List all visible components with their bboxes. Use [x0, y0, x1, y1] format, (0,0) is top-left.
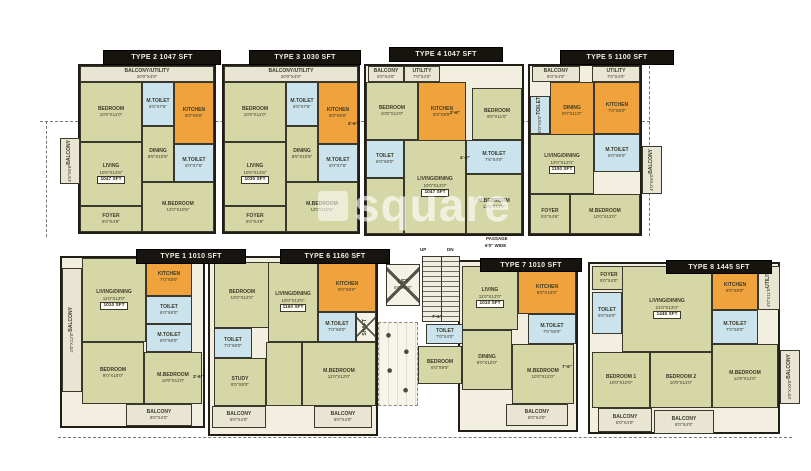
room-dimensions: 7'0"X8'0" — [608, 108, 626, 113]
room-living: LIVING11'0"X12'0"1010 SFT — [462, 266, 518, 330]
room-dimensions: 8'0"X4'0" — [150, 415, 168, 420]
room-balcony: BALCONY4'0"X10'0" — [780, 350, 800, 404]
room-balcony: BALCONY8'0"X4'0" — [532, 66, 580, 82]
type-3-badge: TYPE 3 1030 SFT — [249, 50, 361, 65]
room-dimensions: 10'0"X11'0" — [381, 111, 404, 116]
room-dining: DINING8'6"X10'6" — [286, 126, 318, 182]
room-utility: UTILITY7'0"X4'0" — [404, 66, 440, 82]
dim-label: 4'-0" — [460, 155, 470, 160]
room-dimensions: 7'0"X8'0" — [726, 327, 744, 332]
area-stamp: 1010 SFT — [476, 300, 503, 308]
room-kitchen: KITCHEN8'0"X10'0" — [518, 266, 576, 314]
room-bedroom: BEDROOM10'0"X12'0" — [214, 262, 270, 328]
room-dining: DINING8'0"X11'0" — [550, 82, 594, 140]
room-dimensions: 10'0"X12'0" — [532, 374, 555, 379]
room-dimensions: 6'0"X8'0" — [160, 310, 178, 315]
room-dimensions: 21'0"X13'0" — [656, 305, 679, 310]
room-m-bedroom: M.BEDROOM10'0"X12'0" — [570, 194, 640, 234]
area-stamp: 1445 SFT — [653, 311, 680, 319]
room-dimensions: 6'0"X8'0" — [608, 153, 626, 158]
room-dimensions: 8'0"X4'0" — [334, 417, 352, 422]
room-dimensions: 10'0"X12'0" — [551, 160, 574, 165]
room-m-bedroom: M.BEDROOM12'0"X11'0" — [466, 174, 522, 234]
room-label: SHAFT — [363, 319, 369, 336]
room-dimensions: 4'0"X6'0" — [649, 173, 654, 191]
room-dimensions: 7'0"X8'0" — [160, 277, 178, 282]
room-foyer: FOYER5'0"X4'6" — [80, 206, 142, 232]
dn-label: DN — [447, 247, 454, 252]
room-dimensions: 5'0"X4'0" — [600, 278, 618, 283]
up-label: UP — [420, 247, 426, 252]
room-dimensions: 10'0"X13'0" — [424, 183, 447, 188]
room-foyer: FOYER5'0"X4'6" — [530, 194, 570, 234]
room-dimensions: 8'0"X12'0" — [477, 360, 497, 365]
room-bedroom: BEDROOM10'0"X11'0" — [80, 82, 142, 142]
room-kitchen: KITCHEN8'0"X8'6" — [174, 82, 214, 144]
room-m-bedroom: M.BEDROOM12'0"X11'0" — [712, 344, 778, 408]
room-dimensions: 6'0"X8'0" — [376, 159, 394, 164]
room-dimensions: 7'0"X8'0" — [543, 329, 561, 334]
room-m-bedroom: M.BEDROOM11'0"X12'0" — [302, 342, 376, 406]
room-living: LIVING10'6"X13'6"1047 SFT — [80, 142, 142, 206]
passage-label: PASSAGE — [486, 236, 508, 241]
room-m-toilet: M.TOILET6'0"X8'0" — [594, 134, 640, 172]
dim-label: 2'-6" — [450, 110, 460, 115]
room-toilet: TOILET6'0"X8'0" — [592, 292, 622, 334]
room-dining: DINING8'0"X12'0" — [462, 330, 512, 390]
room-dimensions: 8'0"X10'0" — [537, 290, 557, 295]
room-dimensions: 12'0"X11'0" — [734, 376, 757, 381]
room-dimensions: 5'0"X4'0" — [377, 74, 395, 79]
room-dimensions: 7'0"X4'0" — [436, 334, 454, 339]
boundary-line — [46, 121, 47, 237]
room-bedroom-1: BEDROOM 110'0"X10'0" — [592, 352, 650, 408]
room-living-dining: LIVING/DINING21'0"X13'0"1445 SFT — [622, 266, 712, 352]
room-label: BALCONY — [69, 307, 75, 332]
room-dimensions: 8'0"X8'6" — [329, 113, 347, 118]
room-dimensions: 12'0"X10'6" — [311, 207, 334, 212]
room-kitchen: KITCHEN8'0"X8'0" — [318, 262, 376, 312]
room-dimensions: 5'0"X4'6" — [541, 214, 559, 219]
room-dimensions: 12'0"X10'6" — [167, 207, 190, 212]
room-dimensions: 7'0"X4'0" — [607, 74, 625, 79]
room-m-toilet: M.TOILET7'0"X8'0" — [318, 312, 356, 342]
room-dimensions: 12'0"X11'0" — [483, 204, 506, 209]
room-toilet: TOILET7'0"X4'0" — [426, 324, 464, 344]
type-4-badge: TYPE 4 1047 SFT — [389, 47, 503, 62]
area-stamp: 1010 SFT — [100, 302, 127, 310]
room-foyer: FOYER5'0"X4'6" — [224, 206, 286, 232]
area-stamp: 1100 SFT — [549, 166, 576, 174]
room-dimensions: 7'0"X8'0" — [224, 343, 242, 348]
dim-label: 7'-6" — [562, 364, 572, 369]
floor-plan-canvas: square BALCONY/UTILITY20'0"X4'0"BEDROOM1… — [0, 0, 811, 471]
room-dimensions: 5'0"X4'6" — [102, 219, 120, 224]
room-dimensions: 6'0"X6'0" — [537, 115, 542, 133]
room-balcony: BALCONY8'0"X4'0" — [126, 404, 192, 426]
room-label: BALCONY — [787, 354, 793, 379]
room-foyer: FOYER5'0"X4'0" — [592, 266, 626, 290]
room-utility: UTILITY7'0"X4'0" — [592, 66, 640, 82]
room-dimensions: 9'0"X10'0" — [103, 373, 123, 378]
room-m-bedroom: M.BEDROOM12'0"X10'6" — [142, 182, 214, 232]
room-dimensions: 8'0"X8'0" — [726, 288, 744, 293]
room-room — [378, 322, 418, 406]
room-dimensions: 10'0"X11'0" — [100, 112, 123, 117]
room-dimensions: 10'6"X13'6" — [100, 170, 123, 175]
area-stamp: 1047 SFT — [97, 176, 124, 184]
room-dimensions: 6'0"X7'6" — [329, 163, 347, 168]
room-bedroom: BEDROOM9'0"X11'0" — [472, 88, 522, 140]
room-balcony: BALCONY8'0"X4'0" — [598, 408, 652, 432]
room-m-toilet: M.TOILET6'0"X7'6" — [142, 82, 174, 126]
room-dimensions: 10'0"X11'0" — [670, 380, 693, 385]
room-dimensions: 8'0"X8'0" — [231, 382, 249, 387]
room-dimensions: 9'0"X11'0" — [487, 114, 507, 119]
room-dimensions: 5'0"X4'6" — [246, 219, 264, 224]
room-balcony: BALCONY8'0"X4'0" — [506, 404, 568, 426]
room-shaft: SHAFT — [356, 312, 376, 342]
room-m-bedroom: M.BEDROOM10'0"X12'0" — [512, 344, 574, 404]
room-dimensions: 11'0"X12'0" — [328, 374, 351, 379]
room-dimensions: 6'0"X7'6" — [293, 104, 311, 109]
room-dimensions: 10'6"X13'6" — [244, 170, 267, 175]
room-m-toilet: M.TOILET6'0"X7'6" — [286, 82, 318, 126]
room-m-toilet: M.TOILET7'0"X8'0" — [528, 314, 576, 344]
room-dimensions: 5'0"X5'0" — [394, 285, 412, 290]
type-5-badge: TYPE 5 1100 SFT — [560, 50, 674, 65]
room-dimensions: 6'0"X7'6" — [149, 104, 167, 109]
room-living-dining: LIVING/DINING10'0"X13'0"1160 SFT — [268, 262, 318, 342]
room-dimensions: 11'0"X13'0" — [103, 296, 126, 301]
room-dimensions: 10'0"X12'0" — [594, 214, 617, 219]
room-dimensions: 11'0"X12'0" — [479, 294, 502, 299]
room-dimensions: 6'0"X9'0" — [431, 365, 449, 370]
room-dimensions: 10'0"X10'0" — [610, 380, 633, 385]
room-toilet: TOILET6'0"X8'0" — [146, 296, 192, 324]
boundary-line — [58, 437, 792, 438]
room-dimensions: 8'0"X4'0" — [675, 422, 693, 427]
room-bedroom: BEDROOM10'0"X11'0" — [366, 82, 418, 140]
room-bedroom-2: BEDROOM 210'0"X11'0" — [650, 352, 712, 408]
type-6-badge: TYPE 6 1160 SFT — [280, 249, 390, 264]
room-dimensions: 8'0"X8'6" — [185, 113, 203, 118]
room-kitchen: KITCHEN8'0"X8'6" — [318, 82, 358, 144]
room-dimensions: 8'6"X10'6" — [292, 154, 312, 159]
room-m-toilet: M.TOILET6'0"X8'0" — [146, 324, 192, 352]
dim-label: 2'-6" — [193, 374, 203, 379]
area-stamp: 1047 SFT — [421, 189, 448, 197]
room-bedroom: BEDROOM10'0"X11'0" — [224, 82, 286, 142]
room-label: TOILET — [537, 97, 543, 115]
room-dimensions: 10'0"X11'0" — [244, 112, 267, 117]
room-dimensions: 8'0"X4'0" — [528, 415, 546, 420]
room-m-toilet: M.TOILET6'0"X7'6" — [318, 144, 358, 182]
room-dimensions: 8'0"X11'0" — [562, 111, 582, 116]
room-balcony: BALCONY4'0"X6'0" — [642, 146, 662, 194]
room-dimensions: 8'0"X4'0" — [616, 420, 634, 425]
room-dimensions: 8'0"X8'6" — [433, 112, 451, 117]
room-dimensions: 20'0"X4'0" — [281, 74, 301, 79]
room-bedroom: BEDROOM6'0"X9'0" — [418, 346, 462, 384]
room-m-toilet: M.TOILET7'6"X4'0" — [466, 140, 522, 174]
room-dimensions: 4'0"X12'0" — [69, 332, 74, 352]
room-balcony-utility: BALCONY/UTILITY20'0"X4'0" — [80, 66, 214, 82]
room-balcony: BALCONY4'6"X6'6" — [60, 138, 80, 184]
room-dimensions: 4'0"X11'0" — [766, 287, 771, 307]
room-m-toilet: M.TOILET7'0"X8'0" — [712, 310, 758, 344]
room-dimensions: 6'0"X8'0" — [160, 338, 178, 343]
dim-label: 7'-6" — [432, 314, 442, 319]
room-m-bedroom: M.BEDROOM12'0"X10'6" — [286, 182, 358, 232]
area-stamp: 1030 SFT — [241, 176, 268, 184]
room-toilet: TOILET7'0"X8'0" — [214, 328, 252, 358]
room-dining: DINING8'6"X10'6" — [142, 126, 174, 182]
room-dimensions: 7'0"X8'0" — [328, 327, 346, 332]
room-dimensions: 6'0"X8'0" — [598, 313, 616, 318]
room-dimensions: 10'0"X13'0" — [282, 298, 305, 303]
type-7-badge: TYPE 7 1010 SFT — [480, 258, 582, 272]
room-label: BALCONY — [67, 140, 73, 165]
room-toilet: TOILET6'0"X6'0" — [530, 96, 550, 134]
room-balcony: BALCONY5'0"X4'0" — [368, 66, 404, 82]
floor-plan: square BALCONY/UTILITY20'0"X4'0"BEDROOM1… — [0, 0, 811, 471]
room-dimensions: 10'0"X12'0" — [231, 295, 254, 300]
room-room — [366, 178, 404, 234]
room-dimensions: 8'6"X10'6" — [148, 154, 168, 159]
room-dimensions: 4'6"X6'6" — [67, 164, 72, 182]
room-label: BALCONY — [649, 149, 655, 174]
room-dimensions: 10'0"X11'0" — [162, 378, 185, 383]
room-lift: LIFT5'0"X5'0" — [386, 264, 420, 306]
type-8-badge: TYPE 8 1445 SFT — [666, 260, 772, 274]
room-dimensions: 8'0"X8'0" — [338, 287, 356, 292]
room-living-dining: LIVING/DINING10'0"X13'0"1047 SFT — [404, 140, 466, 234]
dim-label: 2'-6" — [348, 121, 358, 126]
room-dimensions: 6'0"X7'6" — [185, 163, 203, 168]
room-balcony: BALCONY8'0"X4'0" — [314, 406, 372, 428]
room-room — [266, 342, 302, 406]
room-living-dining: LIVING/DINING10'0"X12'0"1100 SFT — [530, 134, 594, 194]
room-living: LIVING10'6"X13'6"1030 SFT — [224, 142, 286, 206]
room-dimensions: 8'0"X4'0" — [230, 417, 248, 422]
room-kitchen: KITCHEN7'0"X8'0" — [594, 82, 640, 134]
passage-width-label: 6'0" WIDE — [485, 243, 506, 248]
room-dimensions: 7'0"X4'0" — [413, 74, 431, 79]
type-1-badge: TYPE 1 1010 SFT — [136, 249, 246, 264]
room-balcony: BALCONY8'0"X4'0" — [212, 406, 266, 428]
area-stamp: 1160 SFT — [280, 304, 307, 312]
type-2-badge: TYPE 2 1047 SFT — [103, 50, 221, 65]
room-living-dining: LIVING/DINING11'0"X13'0"1010 SFT — [82, 258, 146, 342]
room-dimensions: 7'6"X4'0" — [485, 157, 503, 162]
room-dimensions: 20'0"X4'0" — [137, 74, 157, 79]
room-toilet: TOILET6'0"X8'0" — [366, 140, 404, 178]
room-balcony: BALCONY8'0"X4'0" — [654, 410, 714, 434]
room-balcony-utility: BALCONY/UTILITY20'0"X4'0" — [224, 66, 358, 82]
room-dimensions: 4'0"X10'0" — [787, 379, 792, 399]
room-dimensions: 8'0"X4'0" — [547, 74, 565, 79]
room-bedroom: BEDROOM9'0"X10'0" — [82, 342, 144, 404]
room-study: STUDY8'0"X8'0" — [214, 358, 266, 406]
room-room — [422, 256, 460, 322]
room-balcony: BALCONY4'0"X12'0" — [62, 268, 82, 392]
room-m-toilet: M.TOILET6'0"X7'6" — [174, 144, 214, 182]
